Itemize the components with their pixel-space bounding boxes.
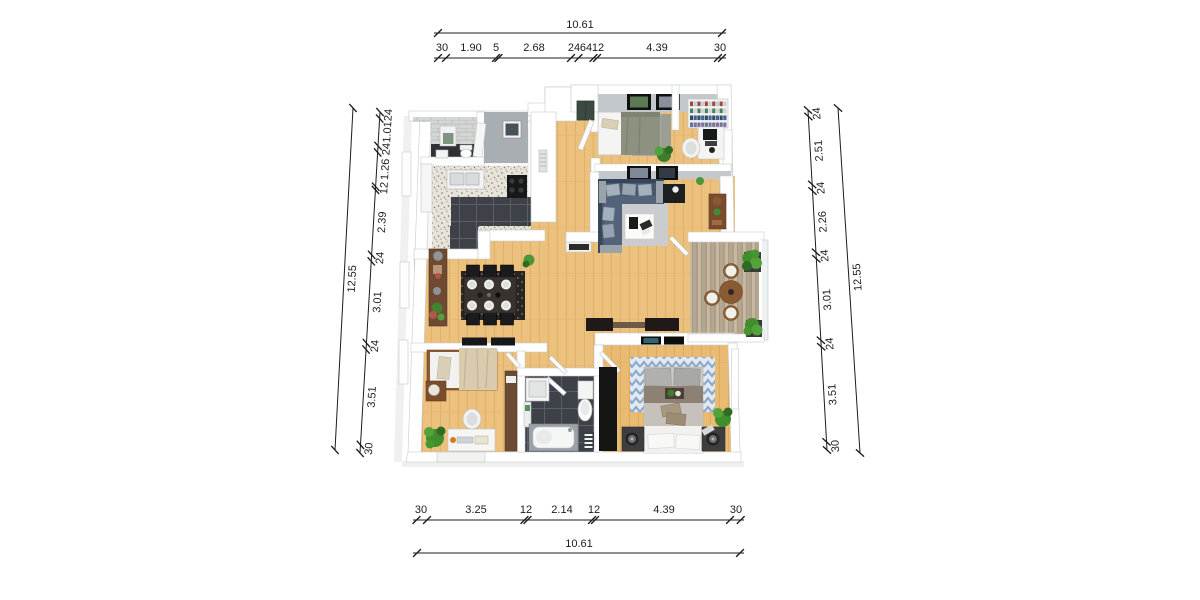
svg-text:30: 30 — [714, 42, 726, 54]
svg-text:2.26: 2.26 — [817, 211, 830, 233]
svg-text:24: 24 — [819, 249, 832, 262]
svg-text:12.55: 12.55 — [346, 265, 359, 293]
svg-text:1.26: 1.26 — [379, 158, 392, 180]
svg-text:24: 24 — [568, 42, 580, 54]
svg-text:12.55: 12.55 — [851, 263, 865, 291]
svg-text:30: 30 — [730, 504, 742, 516]
svg-text:30: 30 — [363, 442, 376, 455]
svg-text:24: 24 — [380, 143, 393, 156]
svg-text:2.39: 2.39 — [376, 211, 389, 233]
svg-text:1.01: 1.01 — [381, 121, 394, 143]
svg-text:3.51: 3.51 — [826, 383, 839, 405]
svg-text:30: 30 — [436, 42, 448, 54]
svg-text:24: 24 — [382, 109, 395, 122]
svg-text:4.39: 4.39 — [646, 42, 667, 54]
svg-text:3.25: 3.25 — [465, 504, 486, 516]
svg-text:12: 12 — [588, 504, 600, 516]
svg-text:24: 24 — [374, 251, 387, 264]
svg-text:1.90: 1.90 — [460, 42, 481, 54]
svg-text:2.51: 2.51 — [813, 140, 826, 162]
svg-text:24: 24 — [369, 340, 382, 353]
svg-text:24: 24 — [815, 182, 828, 195]
svg-text:24: 24 — [811, 107, 824, 120]
svg-text:10.61: 10.61 — [566, 19, 594, 31]
svg-text:12: 12 — [592, 42, 604, 54]
svg-text:5: 5 — [493, 42, 499, 54]
svg-text:3.01: 3.01 — [371, 291, 384, 313]
svg-text:24: 24 — [824, 337, 837, 350]
svg-text:10.61: 10.61 — [565, 538, 593, 550]
svg-text:30: 30 — [829, 440, 842, 453]
svg-text:3.01: 3.01 — [821, 289, 834, 311]
svg-text:3.51: 3.51 — [366, 386, 379, 408]
svg-text:30: 30 — [415, 504, 427, 516]
svg-text:4.39: 4.39 — [653, 504, 674, 516]
svg-text:64: 64 — [580, 42, 592, 54]
svg-text:2.14: 2.14 — [551, 504, 572, 516]
svg-text:2.68: 2.68 — [523, 42, 544, 54]
svg-text:12: 12 — [520, 504, 532, 516]
svg-text:12: 12 — [378, 182, 391, 195]
